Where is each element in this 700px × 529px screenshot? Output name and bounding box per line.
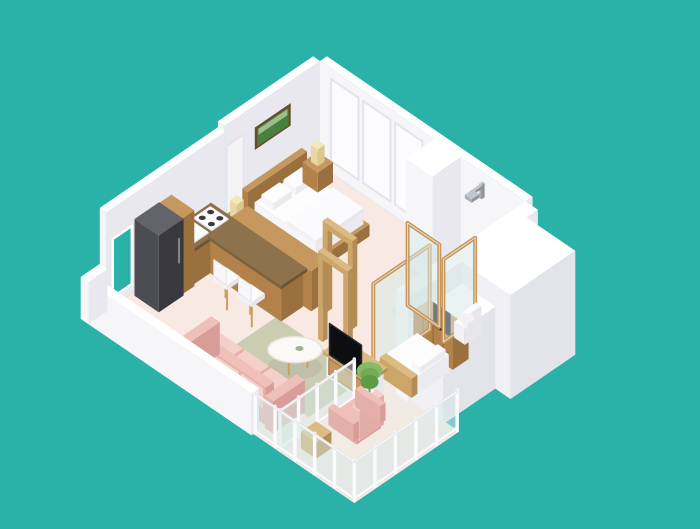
cooktop-burner-3 [216,216,223,220]
cooktop-burner-2 [199,216,206,220]
apartment-3d-floorplan [0,0,700,529]
bedroom-window-1 [331,79,359,180]
doorframe-2-post-a [318,254,328,343]
cooktop-burner-4 [208,222,215,226]
plant-foliage-3 [361,375,379,389]
coffee-table-top [268,337,322,363]
shower-pipe [479,181,484,199]
bedroom-window-2 [363,101,390,202]
toilet-seat [458,313,474,323]
bedside-lamp-1 [311,140,325,166]
kitchen-window-opening [113,226,132,297]
cooktop-burner-1 [207,210,214,214]
floorplan-stage [0,0,700,529]
coffee-table-decor [295,346,303,351]
fridge [135,202,184,312]
